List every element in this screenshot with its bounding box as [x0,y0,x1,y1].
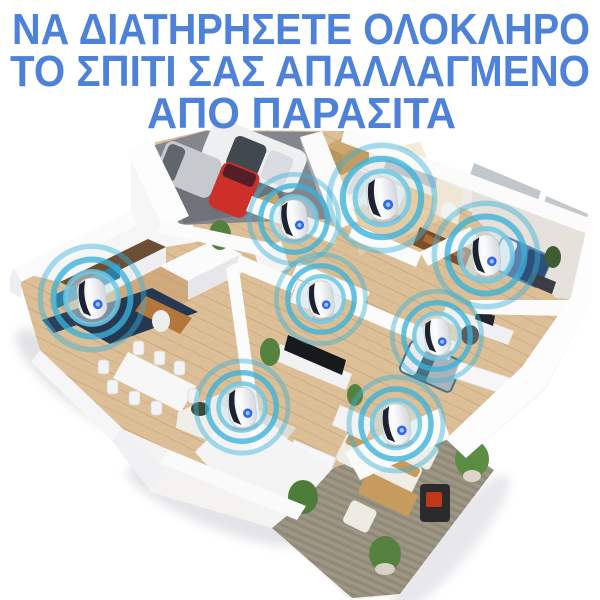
svg-text:ΑΠΟ ΠΑΡΑΣΙΤΑ: ΑΠΟ ΠΑΡΑΣΙΤΑ [147,89,456,138]
